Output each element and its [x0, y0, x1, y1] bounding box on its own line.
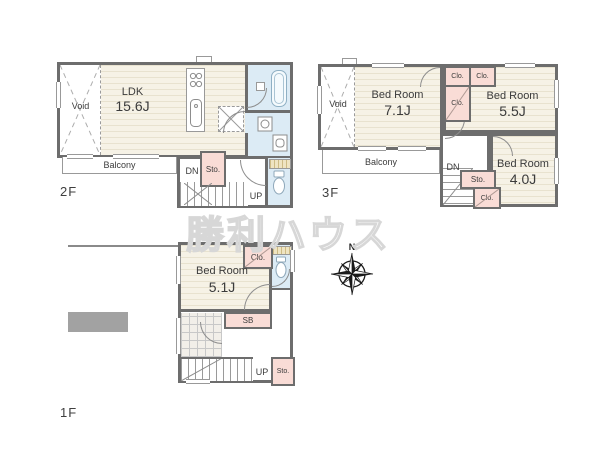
washing-machine-icon: [257, 116, 273, 132]
1f-storage-label: Sto.: [277, 368, 289, 375]
2f-storage: Sto.: [200, 151, 226, 187]
bath-window: [256, 82, 265, 91]
1f-shoe-box: SB: [224, 312, 272, 329]
vanity-sink-icon: [272, 134, 288, 152]
3f-dn-label: DN: [443, 163, 463, 173]
2f-up-label: UP: [246, 192, 266, 202]
3f-bed3-size: 4.0J: [489, 172, 557, 187]
3f-void-label: Void: [321, 100, 355, 110]
2f-ldk-size: 15.6J: [90, 99, 175, 114]
toilet-shelf: [269, 159, 291, 169]
3f-storage-label: Sto.: [471, 175, 485, 184]
kitchen-sink-icon: [189, 98, 203, 128]
compass-icon: [330, 252, 374, 296]
1f-bed-size: 5.1J: [181, 280, 263, 295]
2f-storage-label: Sto.: [206, 165, 220, 174]
window: [290, 250, 295, 272]
2f-floor-label: 2F: [60, 184, 77, 199]
window: [67, 154, 93, 159]
stair-diagonal-icon: [181, 359, 253, 381]
toilet-shelf: [272, 246, 292, 255]
1f-floor-label: 1F: [60, 405, 77, 420]
site-boundary-line: [68, 245, 180, 247]
wall: [245, 133, 248, 156]
window: [398, 146, 426, 151]
3f-bed1-name: Bed Room: [355, 89, 440, 101]
stair-cross-icon: [184, 183, 212, 205]
window: [113, 154, 159, 159]
3f-closet-stair: Clo.: [473, 187, 501, 209]
compass-cardinal-points: [331, 253, 373, 295]
wall: [181, 357, 253, 359]
1f-bed-name: Bed Room: [181, 265, 263, 277]
3f-bed2-size: 5.5J: [470, 104, 555, 119]
3f-closet-a-label: Clo.: [451, 73, 463, 80]
1f-storage: Sto.: [271, 357, 295, 386]
1f-stairs: [181, 359, 253, 381]
window: [176, 318, 181, 354]
parking-block: [68, 312, 128, 332]
3f-bed1-size: 7.1J: [355, 103, 440, 118]
3f-balcony-label: Balcony: [322, 158, 440, 168]
closet-door-line-icon: [446, 87, 469, 120]
closet-door-line-icon: [245, 247, 271, 267]
closet-door-line-icon: [475, 189, 499, 207]
wall: [272, 288, 293, 290]
floorplan-canvas: Void LDK 15.6J: [0, 0, 600, 450]
window: [505, 63, 535, 68]
2f-dn-label: DN: [182, 167, 202, 177]
2f-ldk-name: LDK: [90, 86, 175, 98]
1f-up-label: UP: [252, 368, 272, 378]
3f-closet-a: Clo.: [444, 66, 471, 87]
3f-closet-b: Clo.: [469, 66, 496, 87]
entrance-door-opening: [186, 379, 210, 384]
window: [372, 63, 404, 68]
toilet-icon: [271, 170, 287, 196]
stove-icon: [189, 71, 203, 89]
toilet-icon: [274, 256, 288, 280]
3f-bed2-name: Bed Room: [470, 90, 555, 102]
bathtub-icon: [271, 70, 287, 107]
wall: [245, 110, 290, 113]
3f-closet-b-label: Clo.: [476, 73, 488, 80]
3f-bed3-name: Bed Room: [489, 158, 557, 170]
2f-balcony-label: Balcony: [62, 161, 177, 171]
3f-closet-c: Clo.: [444, 85, 471, 122]
1f-shoe-box-label: SB: [243, 316, 254, 325]
window: [358, 146, 386, 151]
3f-floor-label: 3F: [322, 185, 339, 200]
